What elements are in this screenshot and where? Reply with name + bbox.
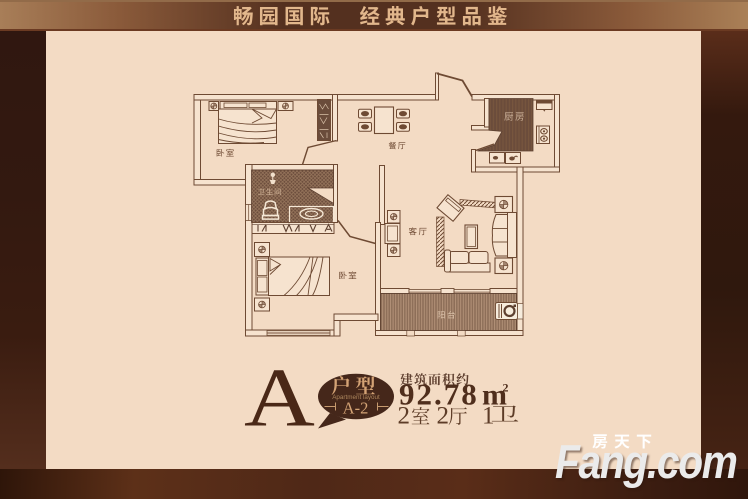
svg-text:1: 1: [482, 402, 495, 429]
svg-text:2: 2: [437, 402, 450, 429]
svg-text:A-2: A-2: [343, 399, 369, 418]
svg-text:2: 2: [503, 381, 509, 395]
svg-text:2: 2: [398, 402, 411, 429]
